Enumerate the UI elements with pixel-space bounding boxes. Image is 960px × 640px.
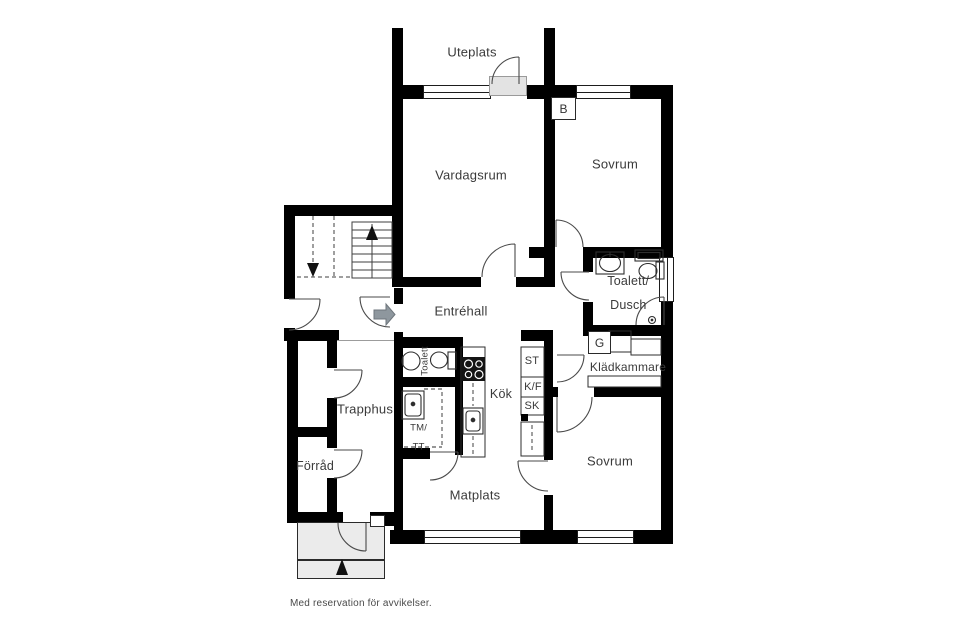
room-label-entrehall: Entréhall <box>434 304 487 319</box>
apartment-entry-door <box>360 297 390 327</box>
entry-arrow-icon <box>374 304 395 325</box>
kitchen-dining-door <box>430 452 458 480</box>
room-label-sovrum-2: Sovrum <box>587 454 633 469</box>
storage2-door <box>334 450 362 478</box>
bathroom-door <box>561 272 589 300</box>
wall <box>552 387 558 397</box>
wall <box>583 247 593 272</box>
disclaimer-text: Med reservation för avvikelser. <box>290 598 432 609</box>
room-label-toalett: Toalett <box>420 346 431 375</box>
room-label-sovrum-1: Sovrum <box>592 157 638 172</box>
marker-label-sk: SK <box>524 400 539 412</box>
wall <box>661 301 673 542</box>
wc-toilet-icon <box>431 352 448 368</box>
room-label-kok: Kök <box>490 387 512 401</box>
marker-label-tm-tt: TM/ TT <box>399 413 427 461</box>
wall <box>516 277 555 287</box>
wall <box>287 427 337 437</box>
wall <box>661 85 673 257</box>
room-label-kladkammare: Klädkammare <box>590 360 666 374</box>
wall <box>327 398 337 448</box>
window <box>659 257 674 302</box>
stairwell-side-door <box>289 299 320 330</box>
wall <box>394 512 403 537</box>
wall <box>392 85 403 287</box>
window <box>424 530 521 544</box>
marker-label-st: ST <box>525 355 539 367</box>
bedroom1-door <box>556 220 583 247</box>
balcony-door-marker-label: B <box>559 102 567 116</box>
wall <box>392 277 481 287</box>
shower-drain-icon <box>649 317 656 324</box>
wall <box>284 205 394 216</box>
wall <box>594 387 673 397</box>
kitchen-sink-icon <box>463 408 483 434</box>
wardrobe-marker: G <box>588 331 611 354</box>
livingroom-door <box>482 244 515 277</box>
room-label-forrad: Förråd <box>296 459 334 473</box>
wall <box>394 288 403 304</box>
patio-door-threshold <box>489 76 527 96</box>
wall <box>284 205 295 299</box>
window <box>576 85 631 99</box>
storage1-door <box>334 370 362 398</box>
room-label-vardagsrum: Vardagsrum <box>435 168 507 183</box>
wall <box>521 530 578 544</box>
wardrobe-marker-label: G <box>595 336 604 350</box>
wall <box>529 247 544 258</box>
porch-step-line <box>298 559 384 561</box>
wall <box>455 337 463 455</box>
room-label-matplats: Matplats <box>450 488 501 503</box>
stairs-up-arrow <box>366 225 378 240</box>
window <box>577 530 634 544</box>
wall <box>544 28 555 86</box>
wall <box>634 530 673 544</box>
window <box>423 85 491 99</box>
duct <box>521 414 528 421</box>
entrance-porch <box>297 522 385 579</box>
stairs-down-arrow <box>307 263 319 277</box>
wall <box>544 495 553 531</box>
wall <box>327 330 337 368</box>
wall <box>392 28 403 86</box>
wall <box>403 337 463 348</box>
wall <box>403 377 463 387</box>
room-label-uteplats: Uteplats <box>447 45 496 60</box>
room-label-toalett-dusch: Toalett/ Dusch <box>593 263 649 323</box>
bedroom2-door <box>557 397 592 432</box>
room-label-trapphus: Trapphus <box>337 402 393 417</box>
marker-label-kf: K/F <box>524 381 542 393</box>
stairs <box>297 216 392 278</box>
balcony-door-marker: B <box>551 97 576 120</box>
porch-threshold-box <box>370 515 385 527</box>
closet-door <box>557 355 584 382</box>
stair-landing-line <box>337 340 394 341</box>
wall <box>287 330 298 522</box>
floorplan-canvas: B G Uteplats Vardagsrum Sovrum Toalett/ … <box>0 0 960 640</box>
dining-bedroom2-door <box>518 461 548 491</box>
stove-icon <box>462 357 485 381</box>
wc-sink-icon <box>402 352 420 370</box>
kitchen-counter <box>461 347 485 457</box>
